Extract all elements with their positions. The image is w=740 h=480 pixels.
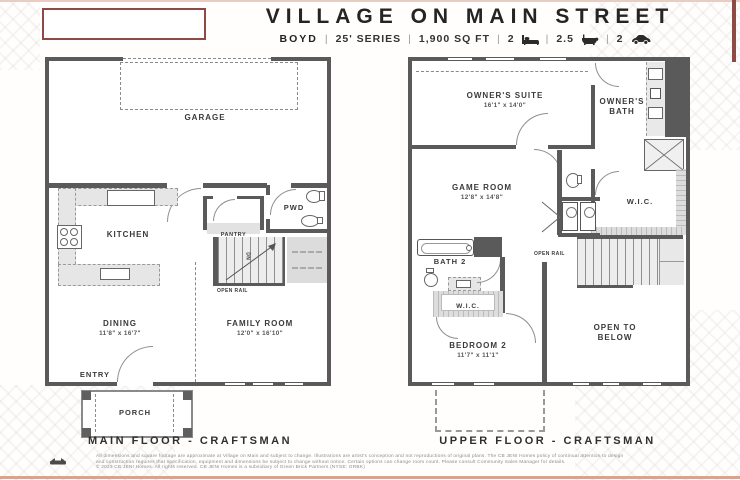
baths-count: 2.5 <box>556 33 574 45</box>
logo-placeholder-box <box>42 8 206 40</box>
separator: | <box>497 33 501 45</box>
sqft-label: 1,900 SQ FT <box>419 33 490 45</box>
porch: PORCH <box>81 390 193 438</box>
builder-logo-icon <box>46 452 70 468</box>
main-floor-caption: MAIN FLOOR - CRAFTSMAN <box>45 435 335 447</box>
bottom-accent-line <box>0 476 740 479</box>
plan-name: BOYD <box>279 33 317 45</box>
disclaimer: All dimensions and square footage are ap… <box>96 454 671 471</box>
room-label-porch: PORCH <box>97 408 173 418</box>
upper-floor-caption: UPPER FLOOR - CRAFTSMAN <box>405 435 690 447</box>
series-label: 25' SERIES <box>336 33 402 45</box>
separator: | <box>606 33 610 45</box>
bed-icon <box>522 34 539 45</box>
lattice-pattern-top-left <box>0 0 40 70</box>
porch-column <box>82 391 91 400</box>
main-floor-plan: GARAGE KITCHEN PANTRY PWD <box>45 57 331 386</box>
porch-column <box>183 391 192 400</box>
fixture-overlay <box>408 57 690 386</box>
roof-below-outline <box>435 390 545 432</box>
right-accent-strip <box>732 0 736 62</box>
separator: | <box>325 33 329 45</box>
bath-icon <box>581 34 599 45</box>
cars-count: 2 <box>617 33 624 45</box>
porch-line <box>173 394 174 432</box>
separator: | <box>408 33 412 45</box>
porch-line <box>95 394 96 432</box>
top-accent-line <box>0 0 740 2</box>
car-icon <box>631 34 651 45</box>
stairs-arrow-overlay <box>45 57 331 386</box>
separator: | <box>546 33 550 45</box>
disclaimer-line: © 2023 CB JENI Homes. All rights reserve… <box>96 465 671 471</box>
page-title: VILLAGE ON MAIN STREET <box>235 5 705 29</box>
beds-count: 2 <box>508 33 515 45</box>
upper-floor-plan: OWNER'S SUITE 16'1" x 14'0" OWNER'S BATH… <box>408 57 690 386</box>
flyer-page: VILLAGE ON MAIN STREET BOYD | 25' SERIES… <box>0 0 740 480</box>
plan-spec-bar: BOYD | 25' SERIES | 1,900 SQ FT | 2 | 2.… <box>240 33 690 45</box>
disclaimer-line: All dimensions and square footage are ap… <box>96 454 671 460</box>
